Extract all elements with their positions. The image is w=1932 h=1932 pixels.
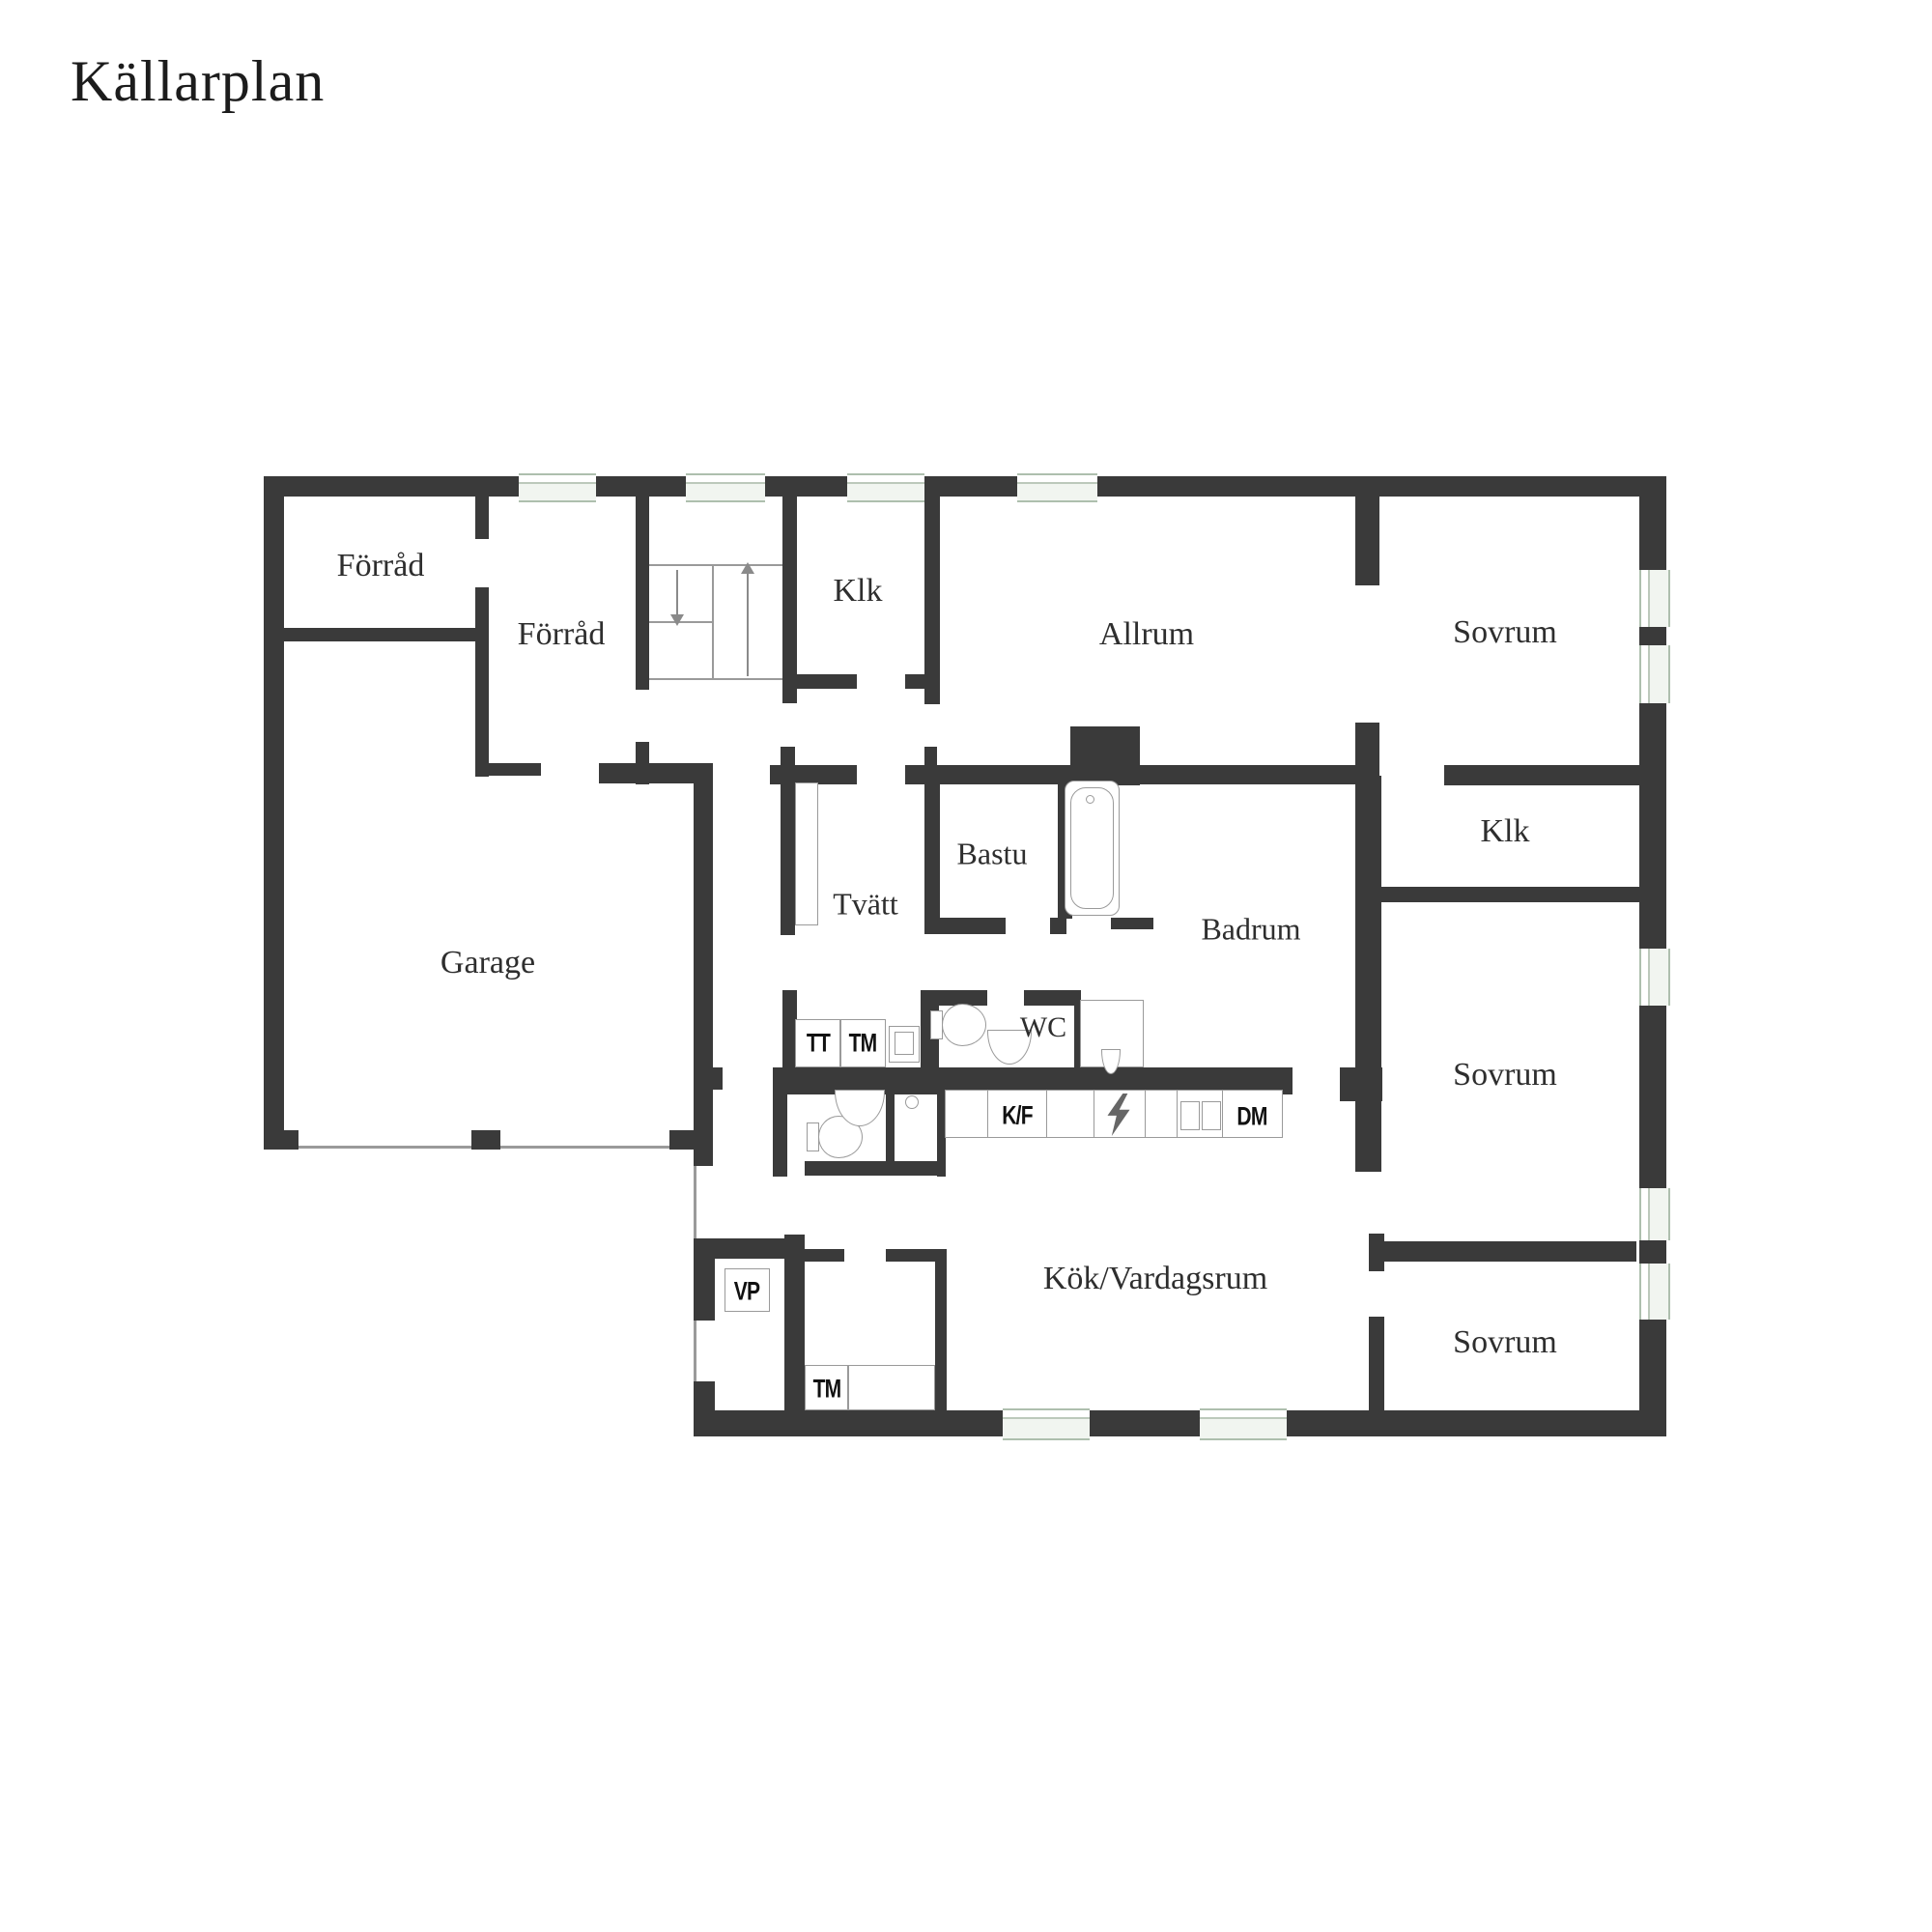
room-label-sovrum: Sovrum xyxy=(1453,614,1557,651)
wall xyxy=(694,1150,713,1166)
room-label-garage: Garage xyxy=(440,945,535,981)
wall xyxy=(1369,1317,1384,1411)
fixture-line xyxy=(649,564,782,566)
wall xyxy=(636,495,649,690)
window xyxy=(1639,1188,1670,1240)
opening-line xyxy=(694,1166,696,1238)
fixture-box xyxy=(848,1365,935,1410)
window xyxy=(847,473,924,502)
room-label-wc: WC xyxy=(1020,1011,1066,1044)
fixture-line xyxy=(712,564,714,680)
wall xyxy=(781,747,795,935)
stairs-arrow-head-up xyxy=(741,562,754,574)
wall xyxy=(694,1381,715,1413)
room-label-tvtt: Tvätt xyxy=(833,887,898,923)
wall xyxy=(711,1067,723,1090)
wall xyxy=(715,1238,785,1259)
wall xyxy=(886,1249,935,1262)
floor-plan-canvas: FörrådFörrådKlkAllrumSovrumKlkSovrumSovr… xyxy=(0,0,1932,1932)
stairs-arrow-stem xyxy=(676,570,678,616)
fixture-box xyxy=(795,782,818,925)
wall xyxy=(1050,918,1066,934)
room-label-frrd: Förråd xyxy=(518,616,606,653)
appliance-label-tm: TM xyxy=(813,1375,841,1405)
wall xyxy=(924,918,1006,934)
wall xyxy=(599,763,713,783)
window xyxy=(1639,949,1670,1006)
room-label-kkvardagsrum: Kök/Vardagsrum xyxy=(1043,1261,1267,1297)
bathtub-drain xyxy=(1086,795,1094,804)
fixture-line xyxy=(848,1365,849,1410)
window xyxy=(1639,645,1670,703)
floorplan-page: Källarplan FörrådFörrådKlkAllrumSovrumKl… xyxy=(0,0,1932,1932)
stairs-arrow-head-down xyxy=(670,614,684,626)
wall xyxy=(784,1235,805,1411)
fixture-line xyxy=(1094,1090,1094,1138)
wall xyxy=(924,747,937,766)
fixture-line xyxy=(987,1090,988,1138)
wall xyxy=(886,1094,895,1162)
wall xyxy=(924,495,940,704)
wall xyxy=(475,495,489,539)
room-label-klk: Klk xyxy=(834,573,883,610)
wall xyxy=(789,674,857,689)
appliance-label-vp: VP xyxy=(734,1277,760,1307)
window xyxy=(1003,1408,1090,1440)
wall xyxy=(475,763,541,776)
wall xyxy=(1024,990,1080,1006)
room-label-bastu: Bastu xyxy=(957,837,1028,872)
window xyxy=(1639,570,1670,627)
opening-line xyxy=(694,1321,696,1381)
toilet-bowl xyxy=(942,1004,986,1046)
room-label-frrd: Förråd xyxy=(337,548,425,584)
opening-line xyxy=(298,1146,471,1149)
wall xyxy=(694,1238,715,1321)
wall xyxy=(782,495,797,703)
stairs-arrow-stem xyxy=(747,572,749,676)
fixture-line xyxy=(649,678,782,680)
room-label-sovrum: Sovrum xyxy=(1453,1057,1557,1094)
window xyxy=(1639,1264,1670,1320)
shower-icon xyxy=(905,1095,919,1109)
wall xyxy=(1379,887,1639,902)
wall xyxy=(471,1130,500,1150)
fixture-box xyxy=(1202,1101,1221,1130)
wall xyxy=(1355,776,1381,1172)
wall xyxy=(805,1249,844,1262)
window xyxy=(519,473,596,502)
wall xyxy=(1070,726,1140,785)
fixture-line xyxy=(1222,1090,1223,1138)
bathtub-inner xyxy=(1070,787,1114,909)
wall xyxy=(805,1161,946,1176)
fixture-line xyxy=(1046,1090,1047,1138)
appliance-label-dm: DM xyxy=(1236,1102,1266,1132)
wall xyxy=(694,1410,1666,1436)
wall xyxy=(1340,1067,1382,1101)
window xyxy=(686,473,765,502)
fixture-box xyxy=(1180,1101,1200,1130)
wall xyxy=(264,476,1666,497)
wall xyxy=(1444,765,1639,785)
wall xyxy=(264,1130,298,1150)
room-label-allrum: Allrum xyxy=(1099,616,1194,653)
wall xyxy=(924,773,940,934)
wall xyxy=(694,765,713,1150)
wall xyxy=(1111,918,1153,929)
wall xyxy=(935,1249,947,1411)
room-label-klk: Klk xyxy=(1481,813,1530,850)
appliance-label-tm: TM xyxy=(849,1029,877,1059)
wall xyxy=(773,1067,787,1177)
window xyxy=(1017,473,1097,502)
wall xyxy=(282,628,480,641)
wall xyxy=(1369,1241,1636,1262)
fixture-line xyxy=(1145,1090,1146,1138)
room-label-badrum: Badrum xyxy=(1201,912,1300,948)
appliance-label-kf: K/F xyxy=(1002,1101,1033,1131)
fixture-line xyxy=(1177,1090,1178,1138)
wall xyxy=(1355,496,1379,585)
wall xyxy=(264,476,284,1150)
opening-line xyxy=(500,1146,669,1149)
window xyxy=(1200,1408,1287,1440)
wall xyxy=(636,742,649,784)
fixture-box xyxy=(895,1032,914,1055)
appliance-label-tt: TT xyxy=(807,1029,830,1059)
wall xyxy=(475,587,489,777)
room-label-sovrum: Sovrum xyxy=(1453,1324,1557,1361)
